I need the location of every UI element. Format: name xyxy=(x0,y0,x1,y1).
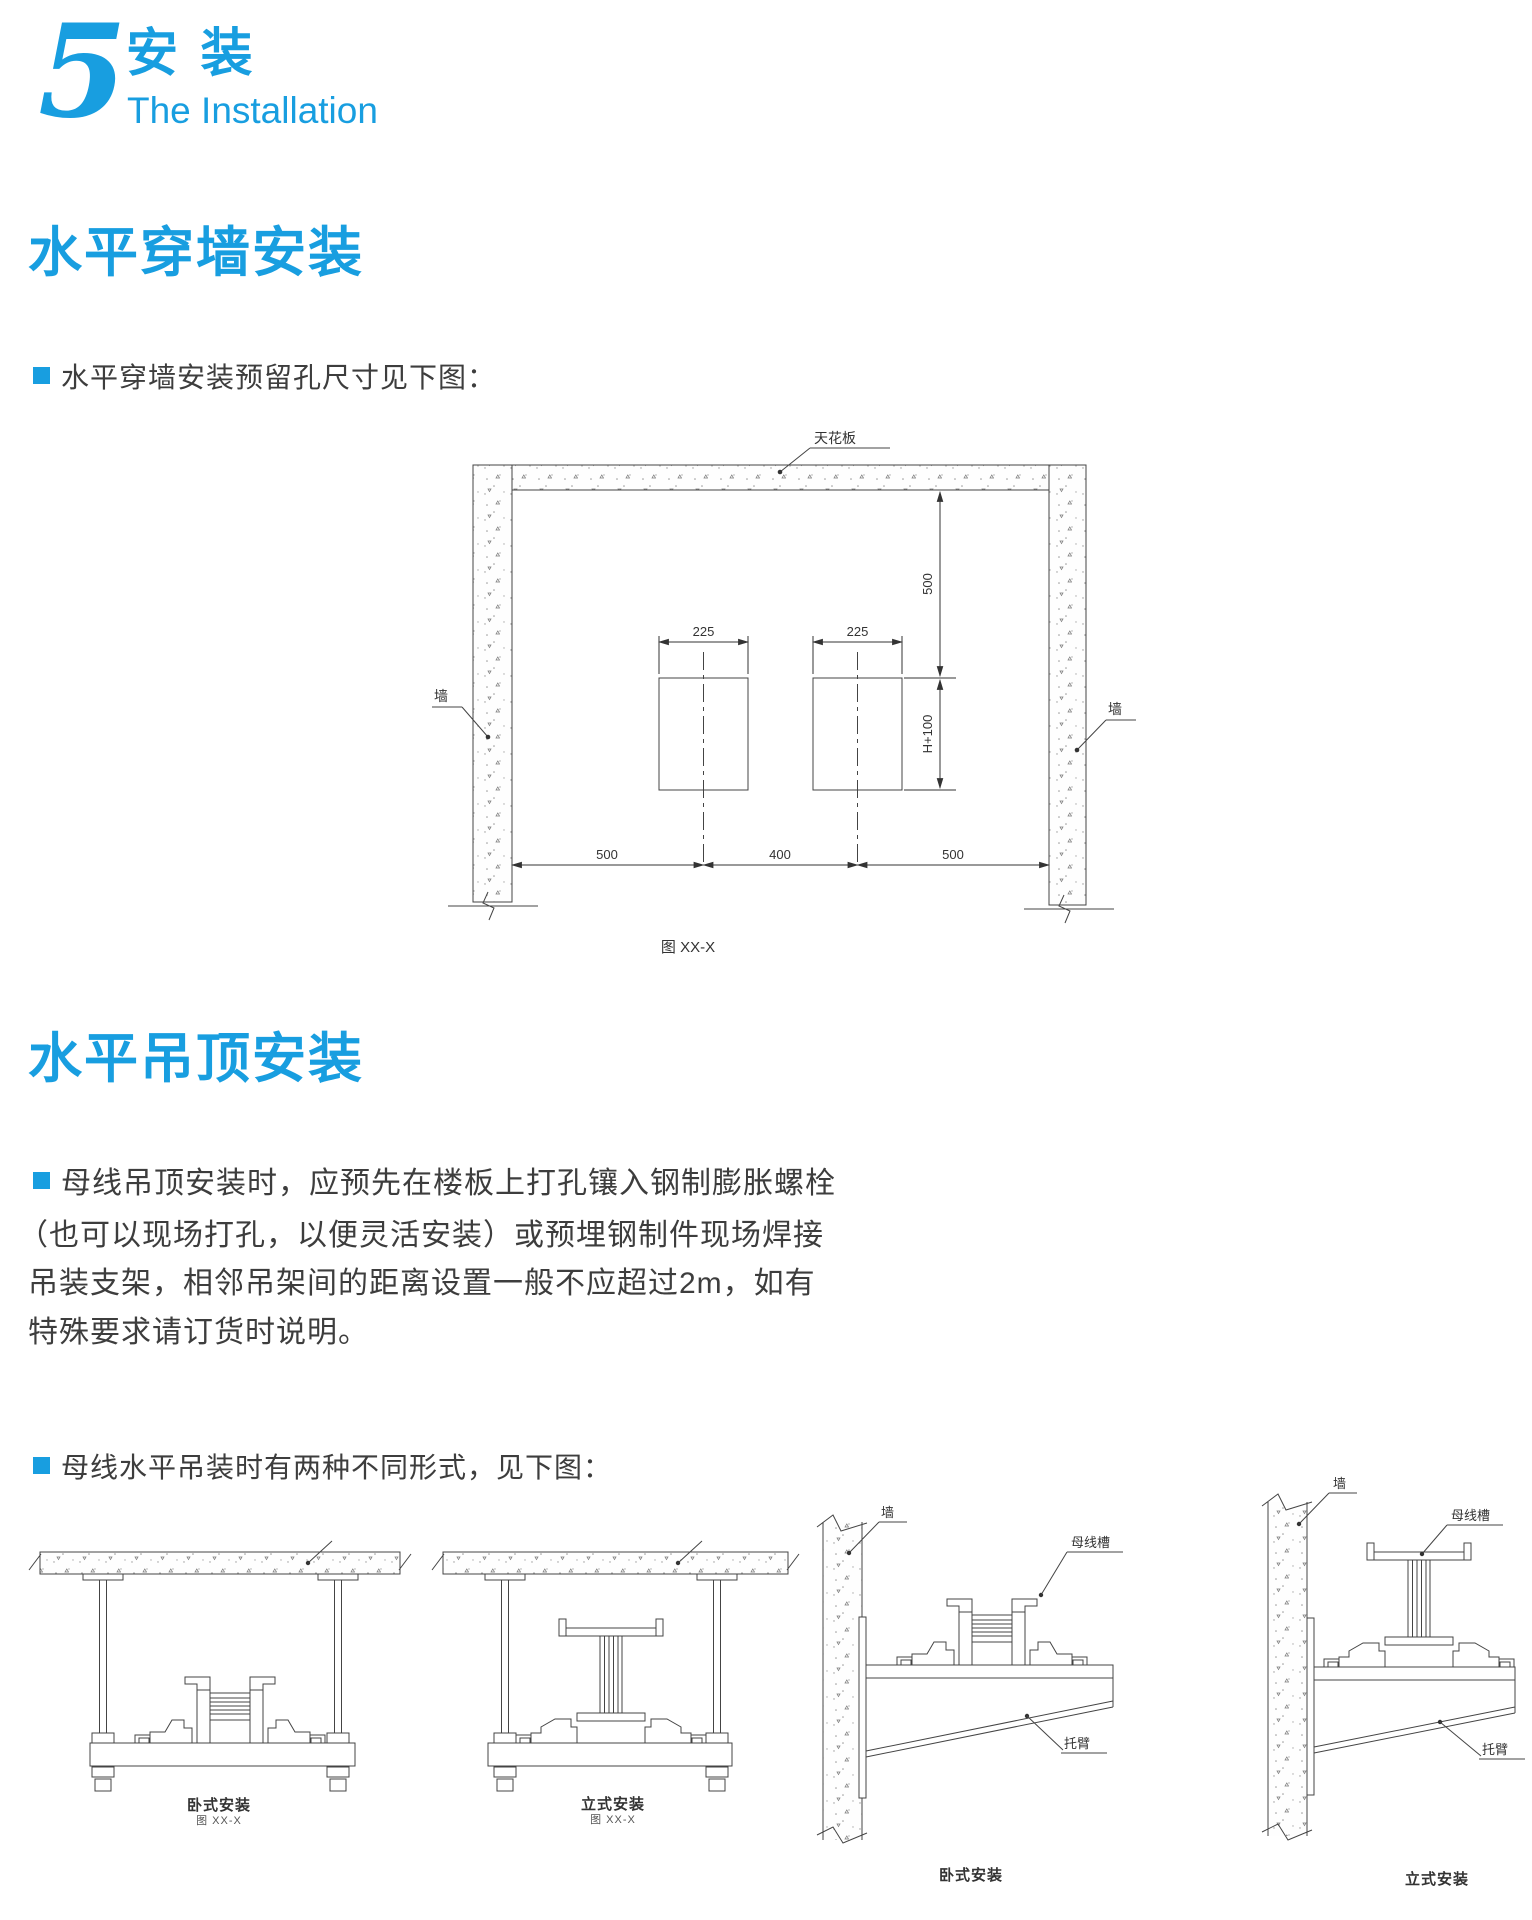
support-channel xyxy=(90,1743,355,1766)
support-channel xyxy=(488,1743,732,1766)
figure-wall-crossing: 225 225 500 H+100 500 400 500 天花板 xyxy=(430,420,1150,980)
bullet-square xyxy=(33,1172,50,1189)
figure-bracket-horizontal: 墙 母线槽 托臂 xyxy=(805,1495,1240,1895)
wall-left xyxy=(473,465,512,902)
label-busbar-duct: 母线槽 xyxy=(1420,1508,1503,1556)
busbar-vertical xyxy=(1324,1543,1514,1667)
figure4-caption: 卧式安装 xyxy=(871,1864,1071,1885)
figure-hang-horizontal xyxy=(25,1540,425,1800)
dim-bottom-spans: 500 400 500 xyxy=(512,847,1049,865)
wall xyxy=(823,1522,862,1840)
svg-text:500: 500 xyxy=(942,847,964,862)
section1-title: 水平穿墙安装 xyxy=(28,226,364,280)
wall-plate xyxy=(859,1617,866,1798)
svg-text:天花板: 天花板 xyxy=(814,430,856,446)
figure2-number: 图 XX-X xyxy=(119,1812,319,1828)
section1-bullet-text: 水平穿墙安装预留孔尺寸见下图： xyxy=(61,361,496,395)
figure5-caption: 立式安装 xyxy=(1337,1868,1532,1889)
busbar-horizontal xyxy=(135,1677,325,1743)
bullet-square xyxy=(33,1457,50,1474)
paragraph-line-2: （也可以现场打孔，以便灵活安装）或预埋钢制件现场焊接 xyxy=(18,1218,824,1254)
paragraph-line-4: 特殊要求请订货时说明。 xyxy=(28,1315,369,1351)
dim-hole-height: H+100 xyxy=(904,678,956,790)
svg-text:400: 400 xyxy=(769,847,791,862)
figure-hang-vertical xyxy=(425,1540,805,1800)
slab-cut-mark xyxy=(787,1554,799,1570)
label-bracket-arm: 托臂 xyxy=(1025,1714,1107,1753)
svg-text:墙: 墙 xyxy=(1333,1476,1346,1491)
svg-text:225: 225 xyxy=(847,624,869,639)
svg-text:225: 225 xyxy=(693,624,715,639)
paragraph-line-1: 母线吊顶安装时，应预先在楼板上打孔镶入钢制膨胀螺栓 xyxy=(61,1166,836,1202)
slab-cut-mark xyxy=(399,1554,411,1570)
label-busbar-duct: 母线槽 xyxy=(1039,1535,1123,1597)
manual-page: 5 安 装 The Installation 水平穿墙安装 水平穿墙安装预留孔尺… xyxy=(0,0,1532,1920)
svg-text:墙: 墙 xyxy=(881,1505,894,1520)
support-channel xyxy=(1314,1667,1515,1680)
figure-bracket-vertical: 墙 母线槽 托臂 xyxy=(1245,1468,1532,1888)
svg-text:托臂: 托臂 xyxy=(1064,1736,1090,1751)
figure1-caption: 图 XX-X xyxy=(560,936,816,957)
slab-cut-mark xyxy=(29,1554,41,1570)
support-channel xyxy=(866,1665,1113,1678)
chapter-number: 5 xyxy=(38,8,127,136)
slab-cut-mark xyxy=(432,1554,444,1570)
figure3-number: 图 XX-X xyxy=(513,1811,713,1827)
wall-plate xyxy=(1307,1618,1314,1795)
svg-text:托臂: 托臂 xyxy=(1482,1742,1508,1757)
svg-text:H+100: H+100 xyxy=(920,715,935,754)
busbar-horizontal xyxy=(897,1599,1087,1665)
chapter-title-en: The Installation xyxy=(127,92,378,129)
svg-text:墙: 墙 xyxy=(1108,701,1122,717)
section2-title: 水平吊顶安装 xyxy=(28,1032,364,1086)
dim-top-clearance: 500 xyxy=(920,492,940,676)
ceiling-slab xyxy=(473,465,1086,490)
section2-bullet-text: 母线水平吊装时有两种不同形式，见下图： xyxy=(61,1451,612,1485)
floor-slab xyxy=(40,1552,400,1574)
svg-text:500: 500 xyxy=(920,573,935,595)
svg-text:500: 500 xyxy=(596,847,618,862)
wall xyxy=(1268,1502,1307,1836)
bullet-square xyxy=(33,367,50,384)
svg-text:母线槽: 母线槽 xyxy=(1451,1508,1490,1523)
svg-text:墙: 墙 xyxy=(434,688,448,704)
svg-text:母线槽: 母线槽 xyxy=(1071,1535,1110,1550)
chapter-title-zh: 安 装 xyxy=(126,28,256,80)
busbar-vertical xyxy=(516,1619,706,1743)
wall-right xyxy=(1049,465,1086,905)
floor-slab xyxy=(443,1552,788,1574)
paragraph-line-3: 吊装支架，相邻吊架间的距离设置一般不应超过2m，如有 xyxy=(28,1266,816,1302)
